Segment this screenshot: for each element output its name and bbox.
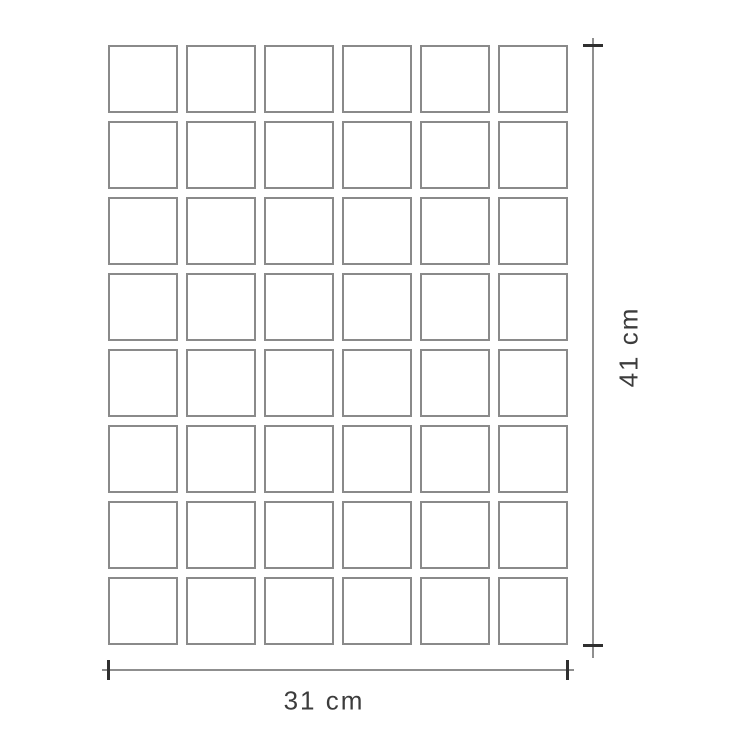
tile (498, 45, 568, 113)
tile (264, 577, 334, 645)
tile (186, 349, 256, 417)
tile (264, 501, 334, 569)
tile (186, 121, 256, 189)
tile (342, 577, 412, 645)
width-dimension-tick-right (566, 660, 569, 680)
width-dimension-tick-left (107, 660, 110, 680)
tile (186, 425, 256, 493)
tile (420, 197, 490, 265)
tile (108, 121, 178, 189)
tile (108, 425, 178, 493)
tile (498, 577, 568, 645)
tile (420, 121, 490, 189)
tile (108, 577, 178, 645)
tile (342, 501, 412, 569)
tile (108, 273, 178, 341)
tile (342, 45, 412, 113)
tile (108, 197, 178, 265)
width-dimension-line (102, 669, 574, 671)
dimension-diagram: 41 cm 31 cm (0, 0, 736, 736)
tile (342, 425, 412, 493)
tile (186, 577, 256, 645)
tile (264, 121, 334, 189)
tile (498, 197, 568, 265)
tile (420, 501, 490, 569)
tile (498, 349, 568, 417)
height-dimension-label: 41 cm (614, 307, 645, 388)
tile (108, 349, 178, 417)
tile (498, 121, 568, 189)
width-dimension-label: 31 cm (284, 686, 365, 717)
height-dimension-tick-bottom (583, 644, 603, 647)
tile-grid (108, 45, 568, 645)
tile (342, 349, 412, 417)
height-dimension-line (592, 38, 594, 658)
tile (108, 501, 178, 569)
tile (420, 273, 490, 341)
tile (264, 197, 334, 265)
tile (186, 501, 256, 569)
tile (498, 425, 568, 493)
tile (264, 273, 334, 341)
tile (108, 45, 178, 113)
tile (420, 425, 490, 493)
tile (342, 273, 412, 341)
tile (264, 425, 334, 493)
tile (186, 197, 256, 265)
tile (264, 45, 334, 113)
tile (186, 273, 256, 341)
tile (420, 577, 490, 645)
tile (186, 45, 256, 113)
tile (342, 197, 412, 265)
tile (498, 273, 568, 341)
tile (498, 501, 568, 569)
tile (420, 349, 490, 417)
tile (342, 121, 412, 189)
height-dimension-tick-top (583, 44, 603, 47)
tile (420, 45, 490, 113)
tile (264, 349, 334, 417)
